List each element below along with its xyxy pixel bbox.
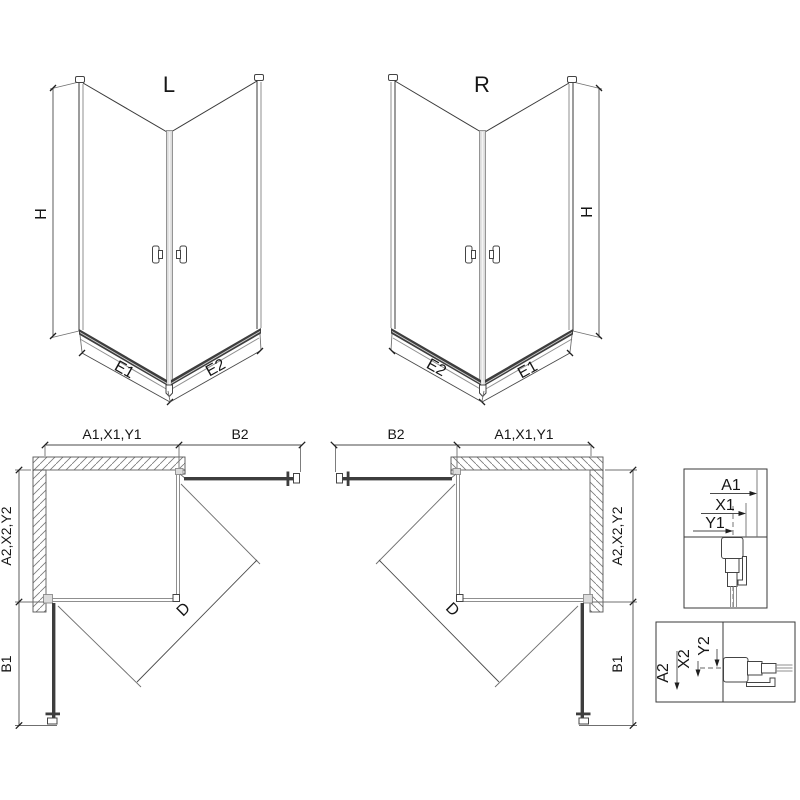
variant-label-right: R [474,72,490,97]
right-plan-view: B2 A1,X1,Y1 A2,X2,Y2 B1 D [331,426,637,729]
shower-enclosure-technical-drawing: L H E1 E2 R H E2 E1 A1,X1,Y1 B2 A2,X2,Y2… [0,0,800,800]
detail-x1-label: X1 [715,497,735,514]
detail-y2-label: Y2 [696,636,713,656]
right-variant-3d-view: R H E2 E1 [389,72,603,405]
plan-right-diagonal-label: D [442,600,462,620]
plan-right-door-depth-label: B1 [609,655,625,672]
left-variant-3d-view: L H E1 E2 [33,72,264,405]
detail-a1-label: A1 [721,477,741,494]
width-detail-inset: A1 X1 Y1 [684,469,767,608]
detail-y1-label: Y1 [705,515,725,532]
plan-left-diagonal-label: D [174,600,194,620]
detail-x2-label: X2 [676,649,693,669]
plan-right-depth-label: A2,X2,Y2 [609,506,625,565]
plan-right-width-label: A1,X1,Y1 [494,426,553,442]
plan-right-door-width-label: B2 [387,426,404,442]
drawing-svg: L H E1 E2 R H E2 E1 A1,X1,Y1 B2 A2,X2,Y2… [0,0,800,800]
plan-left-depth-label: A2,X2,Y2 [0,506,14,565]
variant-label-left: L [163,72,175,97]
plan-left-door-width-label: B2 [231,426,248,442]
plan-left-door-depth-label: B1 [0,655,14,672]
depth-detail-inset: A2 X2 Y2 [655,622,795,702]
plan-left-width-label: A1,X1,Y1 [82,426,141,442]
height-label-right: H [579,206,596,218]
detail-a2-label: A2 [655,663,672,683]
left-plan-view: A1,X1,Y1 B2 A2,X2,Y2 B1 D [0,426,305,729]
height-label-left: H [33,208,50,220]
